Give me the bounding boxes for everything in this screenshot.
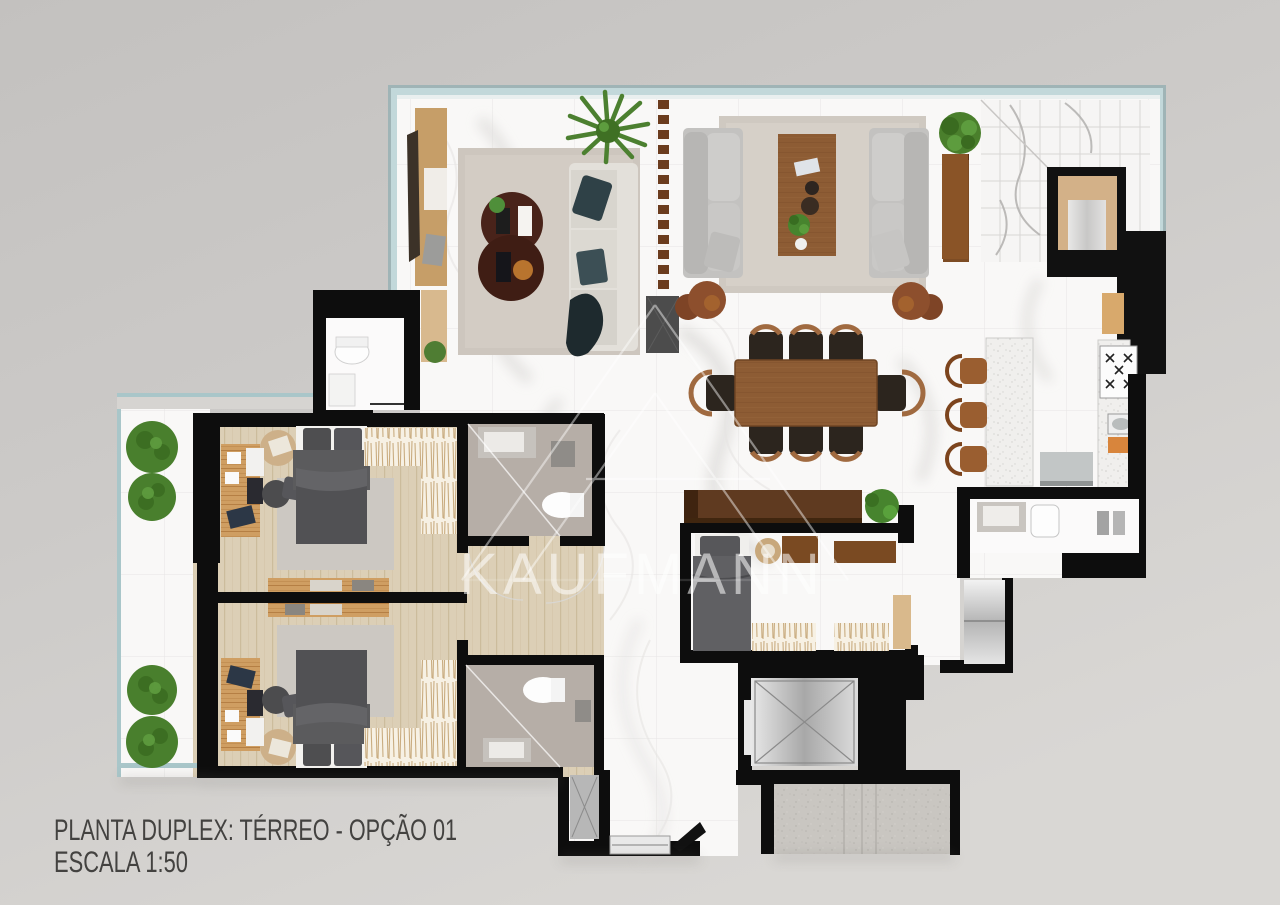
svg-text:PLANTA DUPLEX: TÉRREO - OPÇÃO: PLANTA DUPLEX: TÉRREO - OPÇÃO 01 — [54, 813, 457, 847]
svg-text:ESCALA 1:50: ESCALA 1:50 — [54, 846, 188, 879]
svg-text:KAUFMANN: KAUFMANN — [459, 542, 824, 607]
